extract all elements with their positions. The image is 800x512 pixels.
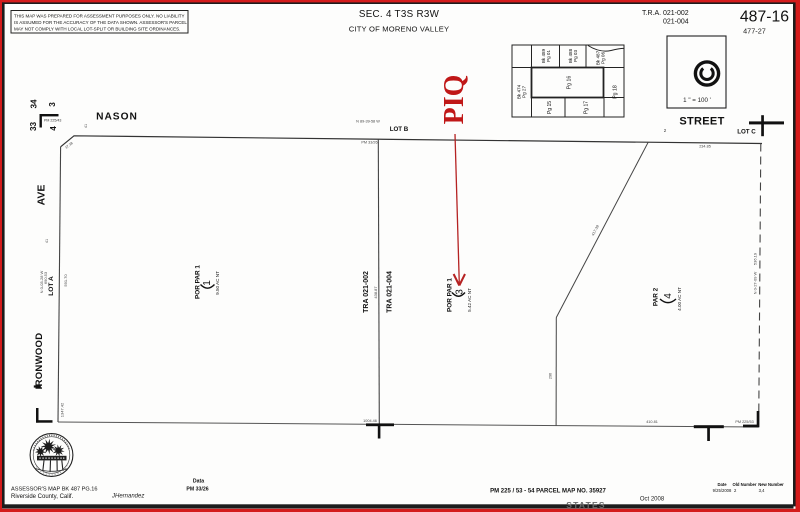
svg-text:Data: Data [193, 479, 204, 485]
svg-text:Oct 2008: Oct 2008 [640, 497, 665, 503]
svg-text:T.R.A.: T.R.A. [642, 10, 661, 17]
svg-text:690.53: 690.53 [43, 271, 48, 284]
svg-text:TRA 021-002: TRA 021-002 [363, 271, 370, 313]
svg-text:TRA 021-004: TRA 021-004 [387, 271, 394, 313]
svg-text:487-16: 487-16 [740, 9, 789, 26]
svg-text:3: 3 [48, 102, 57, 107]
svg-text:4: 4 [49, 126, 58, 131]
svg-text:Pg 01: Pg 01 [546, 50, 551, 62]
svg-text:Pg 06: Pg 06 [601, 52, 606, 64]
svg-text:021-002: 021-002 [663, 10, 689, 17]
svg-text:296: 296 [549, 373, 553, 379]
svg-text:PM 225 / 53 - 54 PARCEL: PM 225 / 53 - 54 PARCEL MAP NO. 35927 [490, 488, 606, 494]
svg-text:536.19: 536.19 [753, 252, 758, 265]
svg-text:POR PAR 1: POR PAR 1 [195, 265, 202, 299]
svg-text:1 " = 100 ': 1 " = 100 ' [683, 97, 711, 104]
svg-text:591.70: 591.70 [63, 274, 68, 287]
svg-text:IS ASSUMED FOR THE ACCURACY OF: IS ASSUMED FOR THE ACCURACY OF THE DATA … [14, 20, 187, 25]
svg-text:ASSESSOR'S MAP BK 487 PG.16: ASSESSOR'S MAP BK 487 PG.16 [11, 487, 97, 493]
svg-text:Pg 27: Pg 27 [522, 86, 527, 98]
svg-text:410.81: 410.81 [646, 420, 658, 424]
svg-text:5.42 AC NT: 5.42 AC NT [467, 288, 472, 312]
svg-text:3,4: 3,4 [759, 488, 765, 493]
svg-text:N 0-27-09 W: N 0-27-09 W [753, 271, 758, 294]
svg-text:POR PAR 1: POR PAR 1 [447, 278, 454, 312]
svg-text:41: 41 [84, 124, 88, 128]
svg-text:9.50 AC NT: 9.50 AC NT [215, 271, 220, 295]
svg-text:THIS MAP WAS PREPARED FOR ASSE: THIS MAP WAS PREPARED FOR ASSESSMENT PUR… [14, 14, 184, 19]
svg-text:IRONWOOD: IRONWOOD [34, 333, 45, 390]
svg-text:PAR 2: PAR 2 [653, 287, 660, 306]
svg-text:N 89-39-58 W: N 89-39-58 W [356, 120, 380, 124]
svg-text:AVE: AVE [36, 185, 48, 206]
svg-text:JHernandez: JHernandez [111, 494, 144, 500]
svg-text:STATES: STATES [566, 500, 605, 510]
svg-text:PM 33/26: PM 33/26 [361, 141, 377, 145]
svg-text:LOT A: LOT A [48, 276, 55, 296]
svg-text:234.85: 234.85 [699, 144, 711, 148]
svg-text:PIQ: PIQ [439, 75, 470, 125]
svg-text:NASON: NASON [96, 112, 138, 123]
svg-text:Pg 15: Pg 15 [547, 101, 553, 114]
svg-text:1347.42: 1347.42 [60, 402, 65, 417]
svg-text:Riverside County, Calif.: Riverside County, Calif. [11, 494, 74, 500]
svg-text:LOT B: LOT B [390, 126, 409, 133]
svg-text:New Number: New Number [758, 482, 784, 487]
svg-text:Pg 16: Pg 16 [567, 76, 573, 90]
svg-text:477-27: 477-27 [743, 27, 766, 36]
svg-text:STREET: STREET [679, 116, 724, 128]
svg-text:34: 34 [30, 99, 39, 109]
svg-text:PM 225/43: PM 225/43 [44, 119, 61, 123]
svg-text:9/25/2008: 9/25/2008 [713, 488, 732, 493]
svg-text:CITY OF MORENO VALLEY: CITY OF MORENO VALLEY [349, 25, 450, 34]
svg-text:MAY NOT COMPLY WITH LOCAL LOT-: MAY NOT COMPLY WITH LOCAL LOT-SPLIT OR B… [14, 27, 180, 32]
svg-text:LOT C: LOT C [737, 129, 756, 136]
svg-text:SEC. 4 T3S R3W: SEC. 4 T3S R3W [359, 9, 440, 20]
svg-text:PM 225/53: PM 225/53 [735, 420, 753, 424]
svg-text:4: 4 [663, 293, 674, 299]
svg-text:Date: Date [717, 482, 727, 487]
svg-text:1004.46: 1004.46 [363, 419, 377, 423]
svg-text:1: 1 [202, 280, 213, 286]
svg-text:41: 41 [45, 239, 49, 243]
svg-text:438.87: 438.87 [373, 286, 378, 299]
svg-text:021-004: 021-004 [663, 19, 689, 26]
svg-text:Old Number: Old Number [733, 482, 757, 487]
svg-text:Pg 03: Pg 03 [573, 50, 578, 62]
svg-text:Pg 18: Pg 18 [613, 85, 619, 99]
svg-text:4.00 AC NT: 4.00 AC NT [677, 287, 682, 311]
svg-text:Pg 17: Pg 17 [584, 101, 590, 114]
svg-text:PM 33/26: PM 33/26 [186, 487, 208, 493]
svg-text:33: 33 [29, 122, 38, 132]
